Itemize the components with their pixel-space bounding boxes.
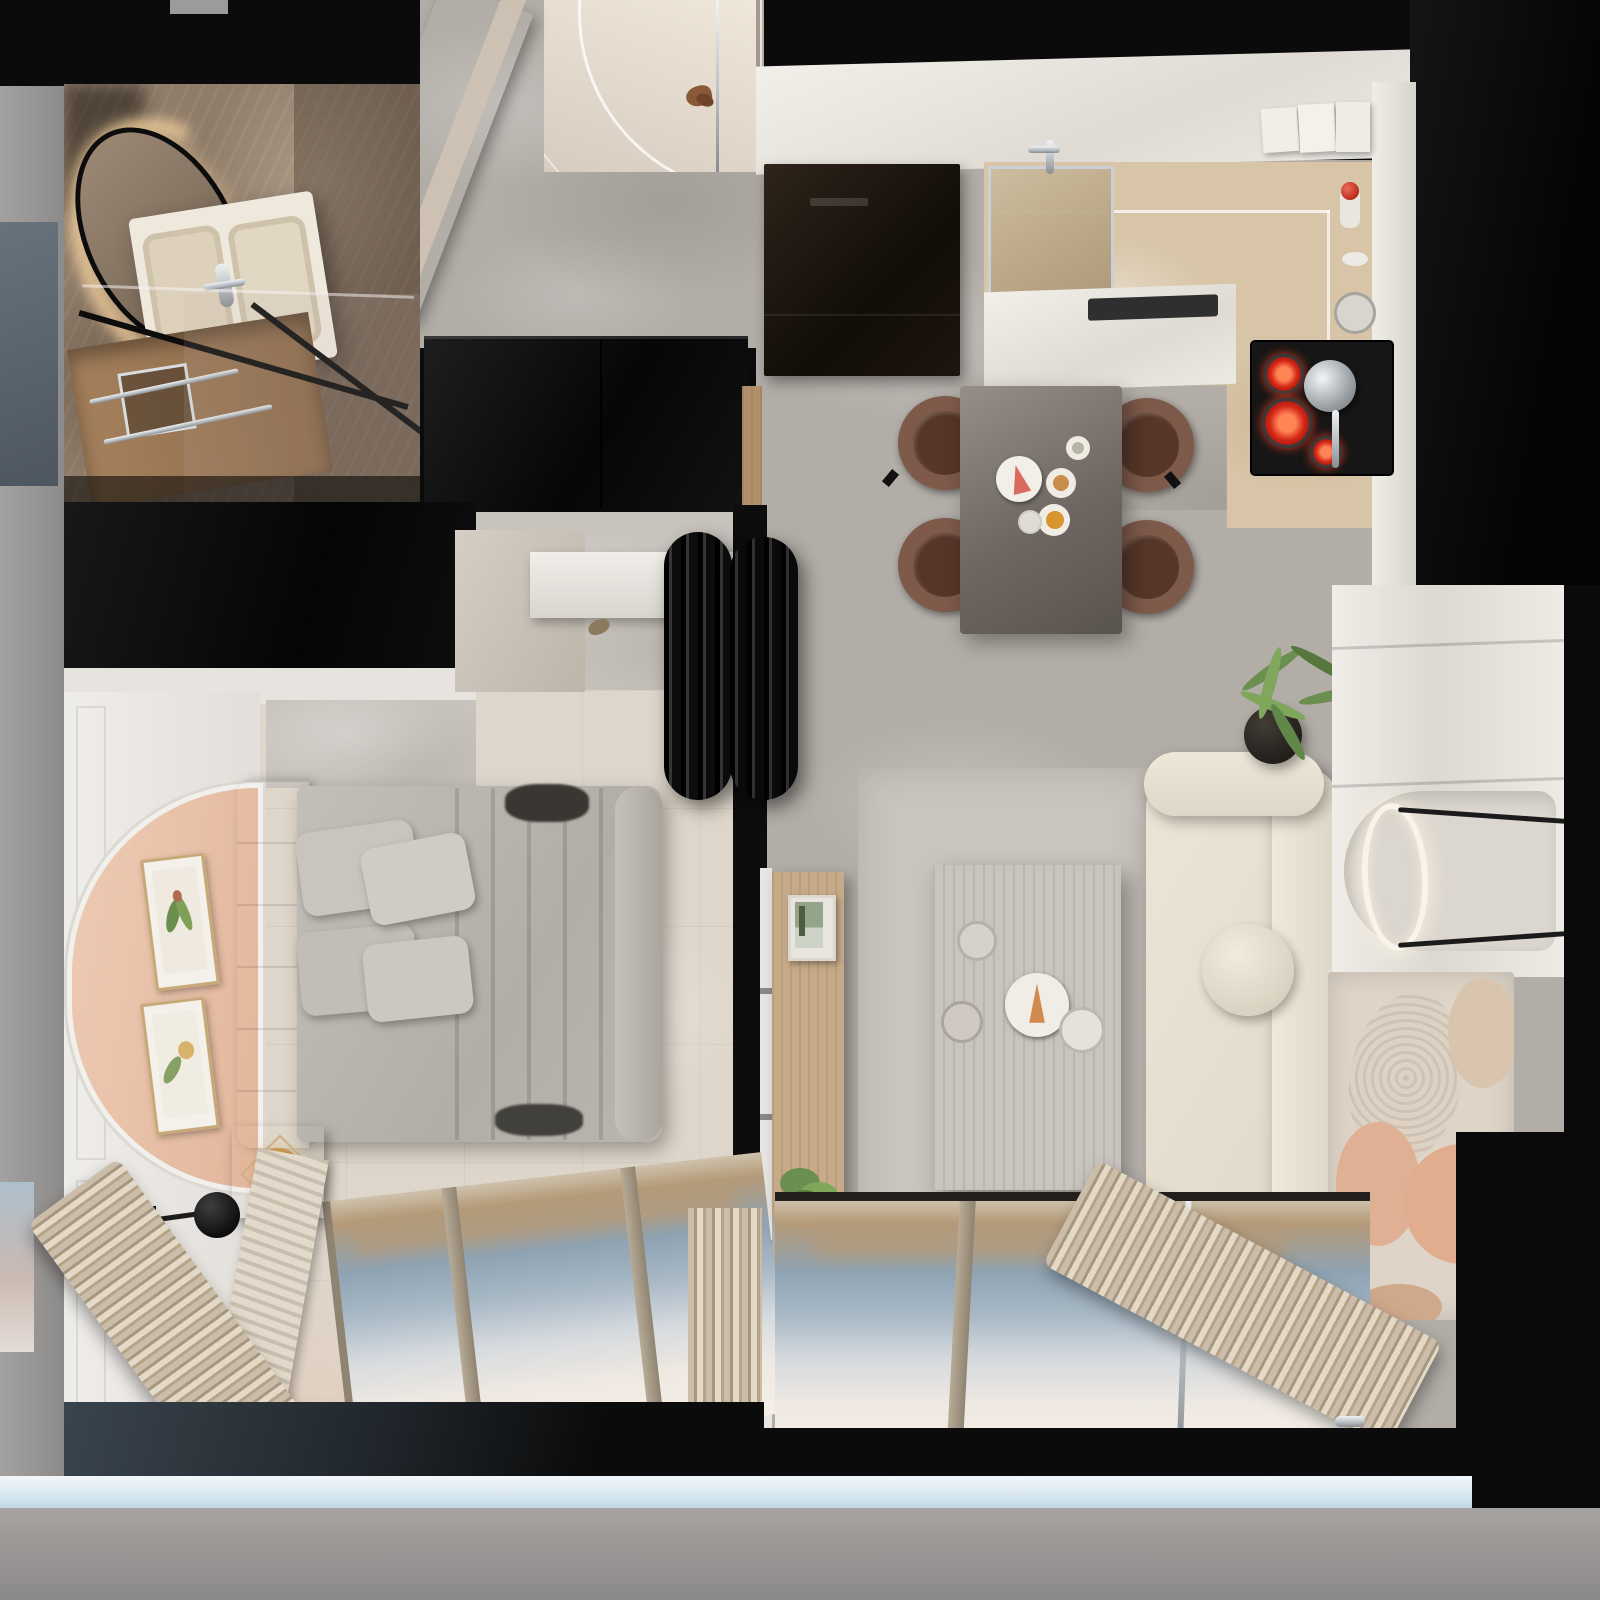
fluted-column-2 bbox=[730, 537, 798, 800]
media-wall bbox=[1332, 585, 1564, 977]
fluted-column-1 bbox=[664, 532, 732, 800]
burner-1 bbox=[1264, 354, 1304, 394]
small-plate bbox=[1342, 252, 1368, 266]
print-art-2 bbox=[152, 1010, 208, 1119]
kitchen-counter-lower bbox=[984, 284, 1236, 393]
round-bolster-cushion bbox=[1202, 924, 1294, 1016]
pastry-plate-1 bbox=[1046, 468, 1076, 498]
burner-2 bbox=[1262, 398, 1312, 448]
decor-cone bbox=[1023, 981, 1051, 1025]
refrigerator bbox=[764, 164, 960, 376]
appliance-box-2 bbox=[1298, 103, 1336, 153]
black-corner-column bbox=[1456, 1132, 1600, 1508]
bed bbox=[237, 778, 662, 1150]
fridge-label bbox=[810, 198, 868, 206]
appliance-box-1 bbox=[1261, 107, 1300, 153]
wardrobe-wood-side bbox=[742, 386, 762, 512]
kettle-handle bbox=[1332, 410, 1339, 468]
fire-extinguisher-top bbox=[1341, 182, 1359, 200]
print-art-1 bbox=[152, 866, 208, 975]
wardrobe-seam bbox=[600, 340, 602, 508]
entry-floor bbox=[544, 0, 762, 172]
fridge-seam bbox=[764, 314, 960, 316]
living-window-frame-top bbox=[775, 1192, 1370, 1201]
exterior-water-sliver bbox=[0, 1182, 34, 1352]
coffee-table bbox=[933, 865, 1121, 1190]
kitchen-sink bbox=[988, 166, 1114, 296]
dining-table bbox=[960, 386, 1122, 634]
wardrobe-top-highlight bbox=[424, 336, 748, 339]
bowl-3 bbox=[1059, 1007, 1105, 1053]
console-photo bbox=[788, 895, 836, 961]
door-swing-arc2 bbox=[544, 0, 762, 172]
right-wall-black bbox=[1564, 585, 1600, 1145]
fur-throw-bottom bbox=[495, 1104, 583, 1136]
pillow-4 bbox=[361, 935, 475, 1024]
bowl-2 bbox=[941, 1001, 983, 1043]
bedroom-top-marble bbox=[266, 700, 476, 788]
balcony-glass-strip bbox=[0, 1476, 1472, 1512]
cup-saucer bbox=[1066, 436, 1090, 460]
bedroom-window-base bbox=[64, 1402, 764, 1482]
hood-slot bbox=[1088, 294, 1218, 321]
sofa-arm-top bbox=[1144, 752, 1324, 816]
cake-plate bbox=[996, 456, 1042, 502]
kettle bbox=[1304, 360, 1356, 412]
duvet-roll-edge bbox=[615, 786, 663, 1142]
sink-faucet-spout bbox=[1028, 146, 1060, 153]
wall-sconce bbox=[194, 1192, 240, 1238]
cooktop bbox=[1252, 342, 1392, 474]
bowl-1 bbox=[957, 921, 997, 961]
exterior-facade-panel bbox=[0, 222, 58, 486]
entry-wardrobe bbox=[424, 336, 748, 512]
door-threshold bbox=[716, 0, 719, 172]
frosted-glass bbox=[1018, 510, 1042, 534]
apartment-render bbox=[0, 0, 1600, 1600]
pot-stack bbox=[1334, 292, 1376, 334]
bathroom bbox=[64, 84, 420, 508]
exterior-top-notch bbox=[170, 0, 228, 14]
tall-cabinet-black bbox=[1410, 0, 1600, 592]
bathroom-south-wall bbox=[64, 502, 476, 672]
cake-slice bbox=[1000, 459, 1037, 499]
window-hardware bbox=[1335, 1416, 1365, 1427]
appliance-box-3 bbox=[1336, 102, 1370, 152]
pastry-plate-2 bbox=[1038, 504, 1070, 536]
fur-throw-top bbox=[505, 784, 589, 822]
rug-peach-blob-1 bbox=[1448, 978, 1514, 1088]
exterior-bottom bbox=[0, 1508, 1600, 1600]
